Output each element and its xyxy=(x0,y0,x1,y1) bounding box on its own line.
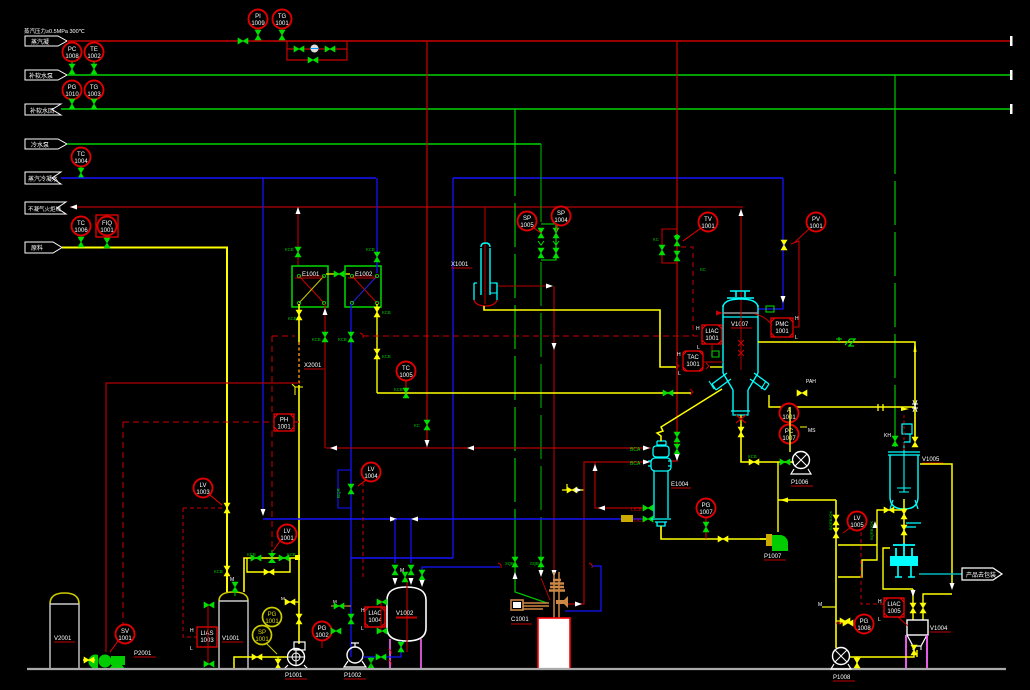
svg-text:PV: PV xyxy=(812,217,820,223)
svg-text:LIAC: LIAC xyxy=(368,611,382,617)
svg-text:TC: TC xyxy=(77,152,86,158)
svg-text:1001: 1001 xyxy=(686,362,700,368)
svg-text:E1004: E1004 xyxy=(671,482,689,488)
svg-text:冷水泵: 冷水泵 xyxy=(31,141,49,149)
svg-text:TC: TC xyxy=(77,221,86,227)
svg-text:TC: TC xyxy=(402,366,411,372)
svg-text:产品去包装: 产品去包装 xyxy=(966,571,996,579)
svg-text:KCB: KCB xyxy=(287,552,296,557)
svg-text:1001: 1001 xyxy=(100,228,114,234)
svg-text:1005: 1005 xyxy=(520,223,534,229)
svg-text:LV: LV xyxy=(854,516,861,522)
svg-text:V1001: V1001 xyxy=(222,636,240,642)
svg-text:TE: TE xyxy=(90,47,98,53)
svg-text:1007: 1007 xyxy=(699,510,713,516)
svg-text:P2001: P2001 xyxy=(134,651,152,657)
svg-text:1008: 1008 xyxy=(857,626,871,632)
svg-text:KCB: KCB xyxy=(214,569,223,574)
svg-text:H: H xyxy=(696,326,700,332)
svg-text:H: H xyxy=(878,599,882,605)
svg-text:BCA: BCA xyxy=(630,447,641,453)
svg-text:PC: PC xyxy=(68,47,77,53)
svg-text:H: H xyxy=(677,352,681,358)
svg-text:P1008: P1008 xyxy=(833,675,851,681)
svg-text:V1002: V1002 xyxy=(396,611,414,617)
svg-text:L: L xyxy=(678,371,681,377)
svg-text:蒸汽凝: 蒸汽凝 xyxy=(31,38,49,46)
svg-text:1002: 1002 xyxy=(87,54,101,60)
svg-text:1005: 1005 xyxy=(399,373,413,379)
svg-text:L: L xyxy=(795,335,798,341)
svg-text:LV: LV xyxy=(368,467,375,473)
svg-text:1001: 1001 xyxy=(775,329,789,335)
svg-text:1004: 1004 xyxy=(364,474,378,480)
svg-text:1001: 1001 xyxy=(705,336,719,342)
svg-text:KC: KC xyxy=(653,237,659,242)
svg-text:1010: 1010 xyxy=(65,92,79,98)
svg-text:LIAS: LIAS xyxy=(200,631,213,637)
svg-text:KCB: KCB xyxy=(247,552,256,557)
svg-text:SV: SV xyxy=(121,629,129,635)
svg-text:1005: 1005 xyxy=(850,523,864,529)
svg-text:SQB: SQB xyxy=(530,561,539,566)
svg-text:KCB: KCB xyxy=(382,354,391,359)
svg-text:不凝气火炬线: 不凝气火炬线 xyxy=(28,205,62,213)
svg-text:E1001: E1001 xyxy=(302,272,320,278)
svg-text:PMC: PMC xyxy=(775,322,789,328)
svg-text:SQB: SQB xyxy=(505,561,514,566)
svg-text:L: L xyxy=(878,617,881,623)
svg-text:TG: TG xyxy=(90,85,99,91)
svg-text:E1002: E1002 xyxy=(355,272,373,278)
svg-text:KCB: KCB xyxy=(382,310,391,315)
svg-text:BQRBJQK: BQRBJQK xyxy=(828,511,833,530)
svg-text:KCB: KCB xyxy=(748,454,757,459)
svg-text:1009: 1009 xyxy=(251,21,265,27)
svg-text:X1001: X1001 xyxy=(451,262,469,268)
svg-text:1003: 1003 xyxy=(200,638,214,644)
svg-text:1005: 1005 xyxy=(887,609,901,615)
svg-text:SP: SP xyxy=(557,211,565,217)
svg-text:蒸汽冷凝水: 蒸汽冷凝水 xyxy=(28,175,58,183)
svg-text:M: M xyxy=(818,602,822,608)
svg-text:TAC: TAC xyxy=(687,355,699,361)
svg-text:H: H xyxy=(361,608,365,614)
svg-text:补软水泵: 补软水泵 xyxy=(29,72,53,80)
svg-text:SP: SP xyxy=(523,216,531,222)
svg-text:KH: KH xyxy=(884,433,891,439)
svg-text:KCB: KCB xyxy=(394,387,403,392)
svg-text:KCB: KCB xyxy=(285,247,294,252)
svg-text:1001: 1001 xyxy=(809,224,823,230)
svg-text:TG: TG xyxy=(278,14,287,20)
svg-text:M: M xyxy=(281,596,285,601)
svg-text:PG: PG xyxy=(68,85,77,91)
svg-text:1004: 1004 xyxy=(368,618,382,624)
svg-text:1001: 1001 xyxy=(265,619,279,625)
svg-text:LV: LV xyxy=(200,483,207,489)
svg-text:BCA: BCA xyxy=(630,461,641,467)
svg-text:补软水回: 补软水回 xyxy=(30,107,54,115)
svg-text:PG: PG xyxy=(318,626,327,632)
svg-text:1003: 1003 xyxy=(87,92,101,98)
svg-text:L: L xyxy=(361,626,364,632)
svg-text:P1002: P1002 xyxy=(344,673,362,679)
svg-text:X2001: X2001 xyxy=(304,363,322,369)
svg-text:P1006: P1006 xyxy=(791,480,809,486)
svg-text:1008: 1008 xyxy=(65,54,79,60)
svg-text:P1007: P1007 xyxy=(764,554,782,560)
svg-text:1001: 1001 xyxy=(280,536,294,542)
svg-text:PH: PH xyxy=(280,418,288,424)
svg-text:1004: 1004 xyxy=(554,218,568,224)
svg-text:PG: PG xyxy=(860,619,869,625)
svg-text:V1004: V1004 xyxy=(930,626,948,632)
svg-text:V1005: V1005 xyxy=(922,457,940,463)
svg-text:H: H xyxy=(795,316,799,322)
svg-text:TV: TV xyxy=(704,217,712,223)
svg-text:PG: PG xyxy=(268,612,277,618)
svg-text:LICB: LICB xyxy=(631,507,643,513)
svg-text:1002: 1002 xyxy=(315,633,329,639)
svg-text:KCB: KCB xyxy=(338,337,347,342)
svg-text:PAH: PAH xyxy=(806,379,816,385)
svg-text:KCB: KCB xyxy=(366,247,375,252)
svg-text:原料: 原料 xyxy=(31,244,43,252)
svg-text:PG: PG xyxy=(702,503,711,509)
svg-text:KCB: KCB xyxy=(312,337,321,342)
svg-text:V2001: V2001 xyxy=(54,636,72,642)
svg-text:1006: 1006 xyxy=(74,228,88,234)
svg-text:1001: 1001 xyxy=(277,425,291,431)
svg-text:BQR: BQR xyxy=(336,487,341,498)
svg-text:1001: 1001 xyxy=(255,637,269,643)
svg-text:1003: 1003 xyxy=(196,490,210,496)
svg-text:BQRBJQK: BQRBJQK xyxy=(869,521,874,540)
svg-text:1001: 1001 xyxy=(118,636,132,642)
svg-text:P1001: P1001 xyxy=(285,673,303,679)
svg-text:C1001: C1001 xyxy=(511,617,529,623)
svg-text:KC: KC xyxy=(700,267,706,272)
svg-text:1001: 1001 xyxy=(701,224,715,230)
svg-text:SP: SP xyxy=(258,630,266,636)
svg-text:V1007: V1007 xyxy=(731,322,749,328)
svg-text:LIAC: LIAC xyxy=(887,602,901,608)
svg-text:KC: KC xyxy=(414,423,420,428)
svg-text:LV: LV xyxy=(284,529,291,535)
svg-text:蒸汽压力≥0.5MPa 300℃: 蒸汽压力≥0.5MPa 300℃ xyxy=(24,27,86,35)
svg-text:MS: MS xyxy=(808,428,816,434)
svg-text:H: H xyxy=(190,628,194,634)
svg-text:M: M xyxy=(333,599,337,604)
svg-text:LIAC: LIAC xyxy=(705,329,719,335)
svg-text:KCB: KCB xyxy=(288,316,297,321)
svg-text:L: L xyxy=(697,345,700,351)
svg-text:1004: 1004 xyxy=(74,159,88,165)
svg-text:FIQ: FIQ xyxy=(102,221,112,227)
svg-text:1001: 1001 xyxy=(275,21,289,27)
svg-text:L: L xyxy=(190,646,193,652)
svg-text:PI: PI xyxy=(255,14,261,20)
